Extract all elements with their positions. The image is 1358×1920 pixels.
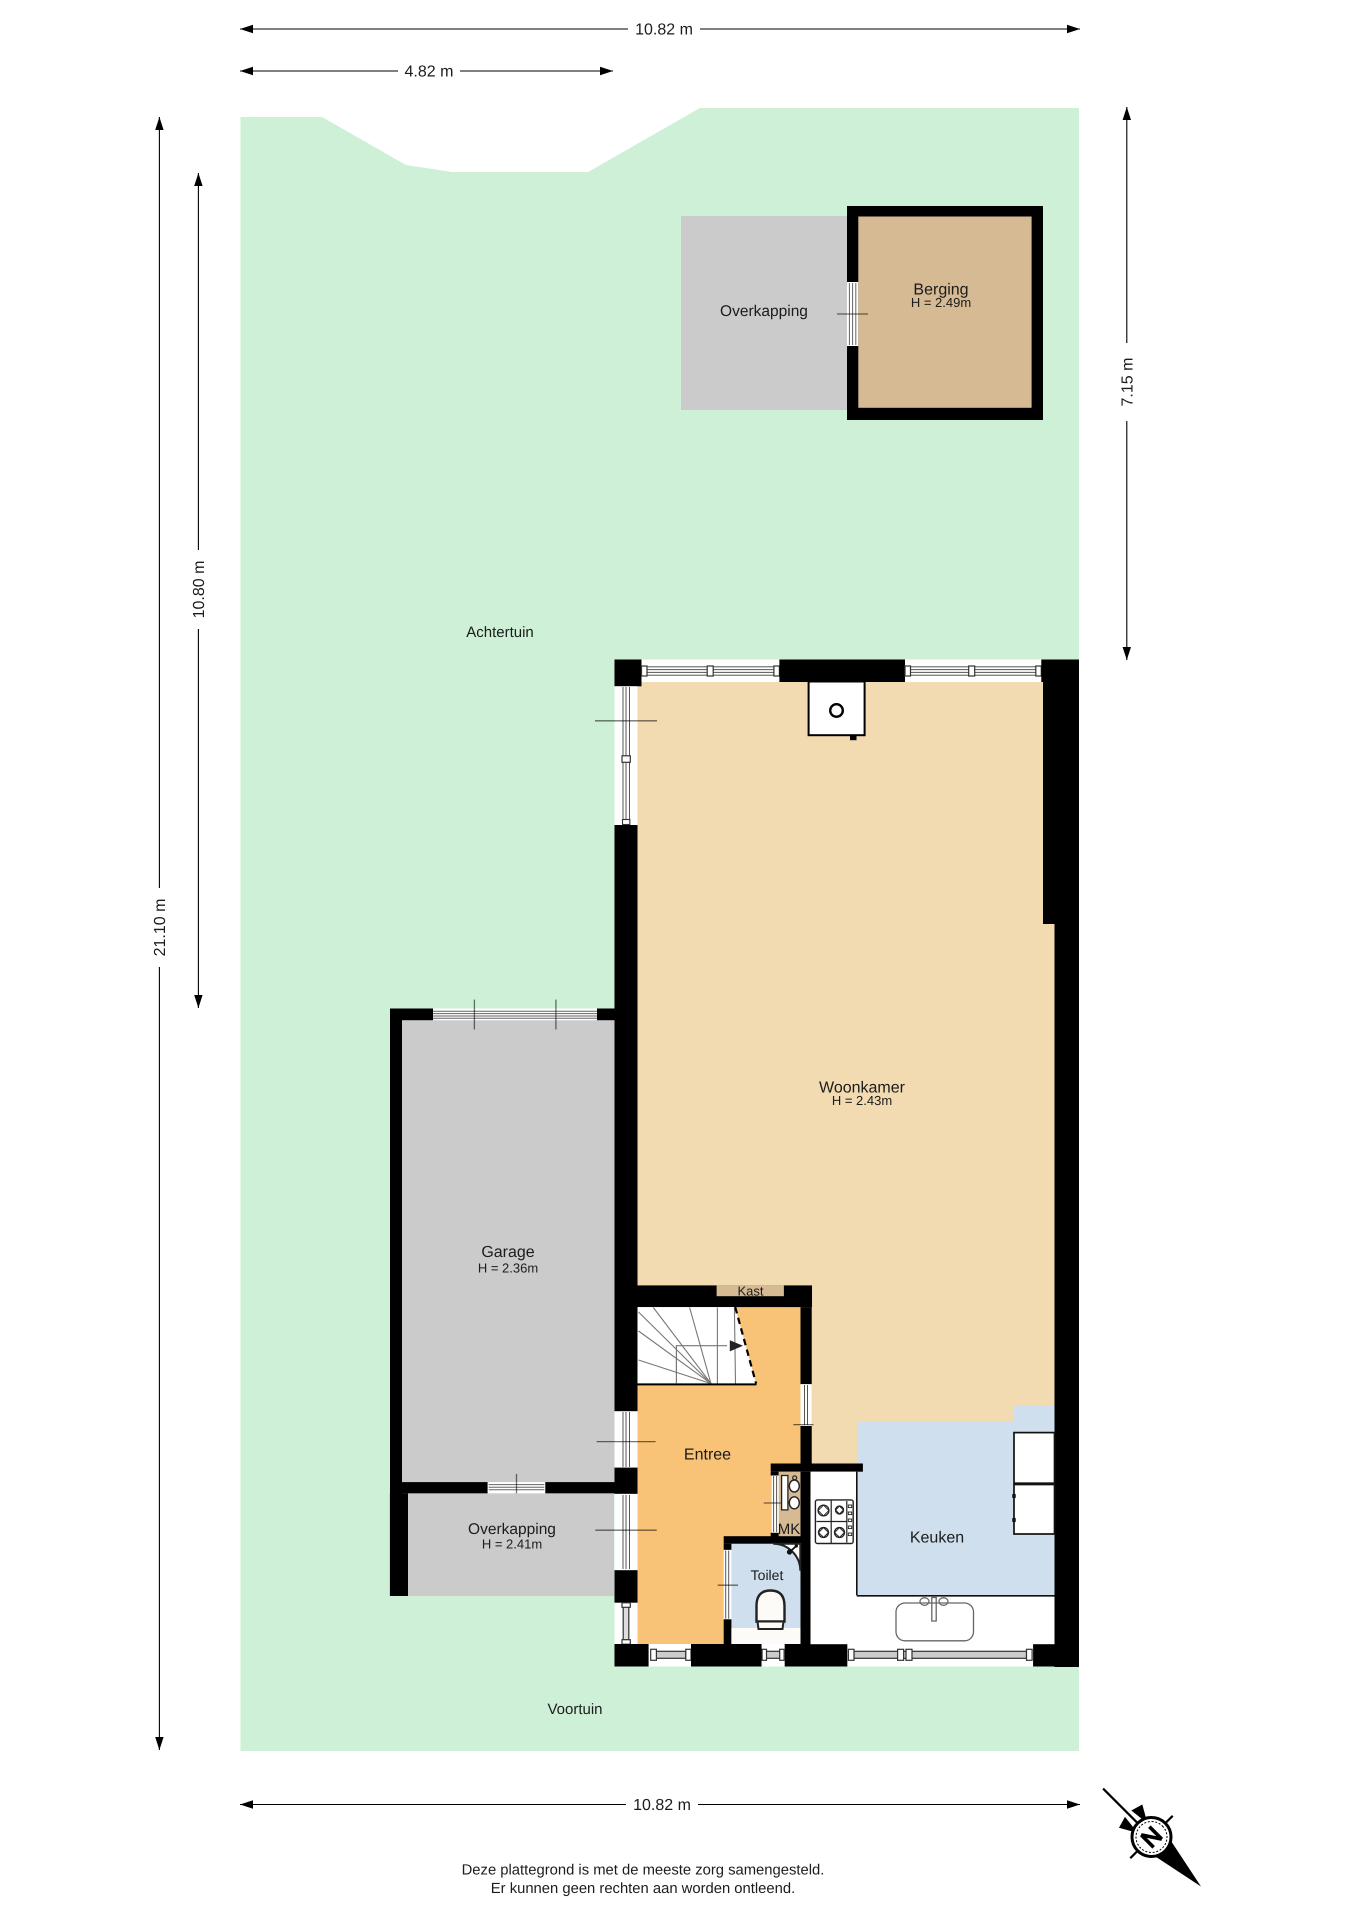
svg-text:H = 2.43m: H = 2.43m — [832, 1093, 892, 1108]
svg-text:H = 2.36m: H = 2.36m — [478, 1261, 538, 1276]
svg-text:MK: MK — [778, 1521, 801, 1538]
svg-text:Overkapping: Overkapping — [468, 1521, 556, 1538]
svg-text:21.10 m: 21.10 m — [152, 899, 169, 957]
svg-text:Overkapping: Overkapping — [720, 303, 808, 320]
svg-text:10.82 m: 10.82 m — [635, 21, 693, 38]
svg-text:Er kunnen geen rechten aan wor: Er kunnen geen rechten aan worden ontlee… — [491, 1881, 795, 1897]
svg-text:10.82 m: 10.82 m — [633, 1797, 691, 1814]
svg-text:10.80 m: 10.80 m — [191, 561, 208, 619]
svg-text:Kast: Kast — [737, 1284, 763, 1299]
svg-text:Deze plattegrond is met de mee: Deze plattegrond is met de meeste zorg s… — [462, 1863, 825, 1879]
svg-text:Toilet: Toilet — [751, 1567, 784, 1583]
svg-text:H = 2.49m: H = 2.49m — [911, 295, 971, 310]
svg-text:Keuken: Keuken — [910, 1530, 964, 1547]
svg-text:4.82 m: 4.82 m — [405, 63, 454, 80]
svg-text:H = 2.41m: H = 2.41m — [482, 1537, 542, 1552]
svg-text:Garage: Garage — [481, 1244, 534, 1261]
svg-text:7.15 m: 7.15 m — [1119, 358, 1136, 407]
svg-text:Achtertuin: Achtertuin — [466, 624, 534, 641]
svg-text:Voortuin: Voortuin — [547, 1701, 602, 1718]
svg-text:Entree: Entree — [684, 1447, 731, 1464]
